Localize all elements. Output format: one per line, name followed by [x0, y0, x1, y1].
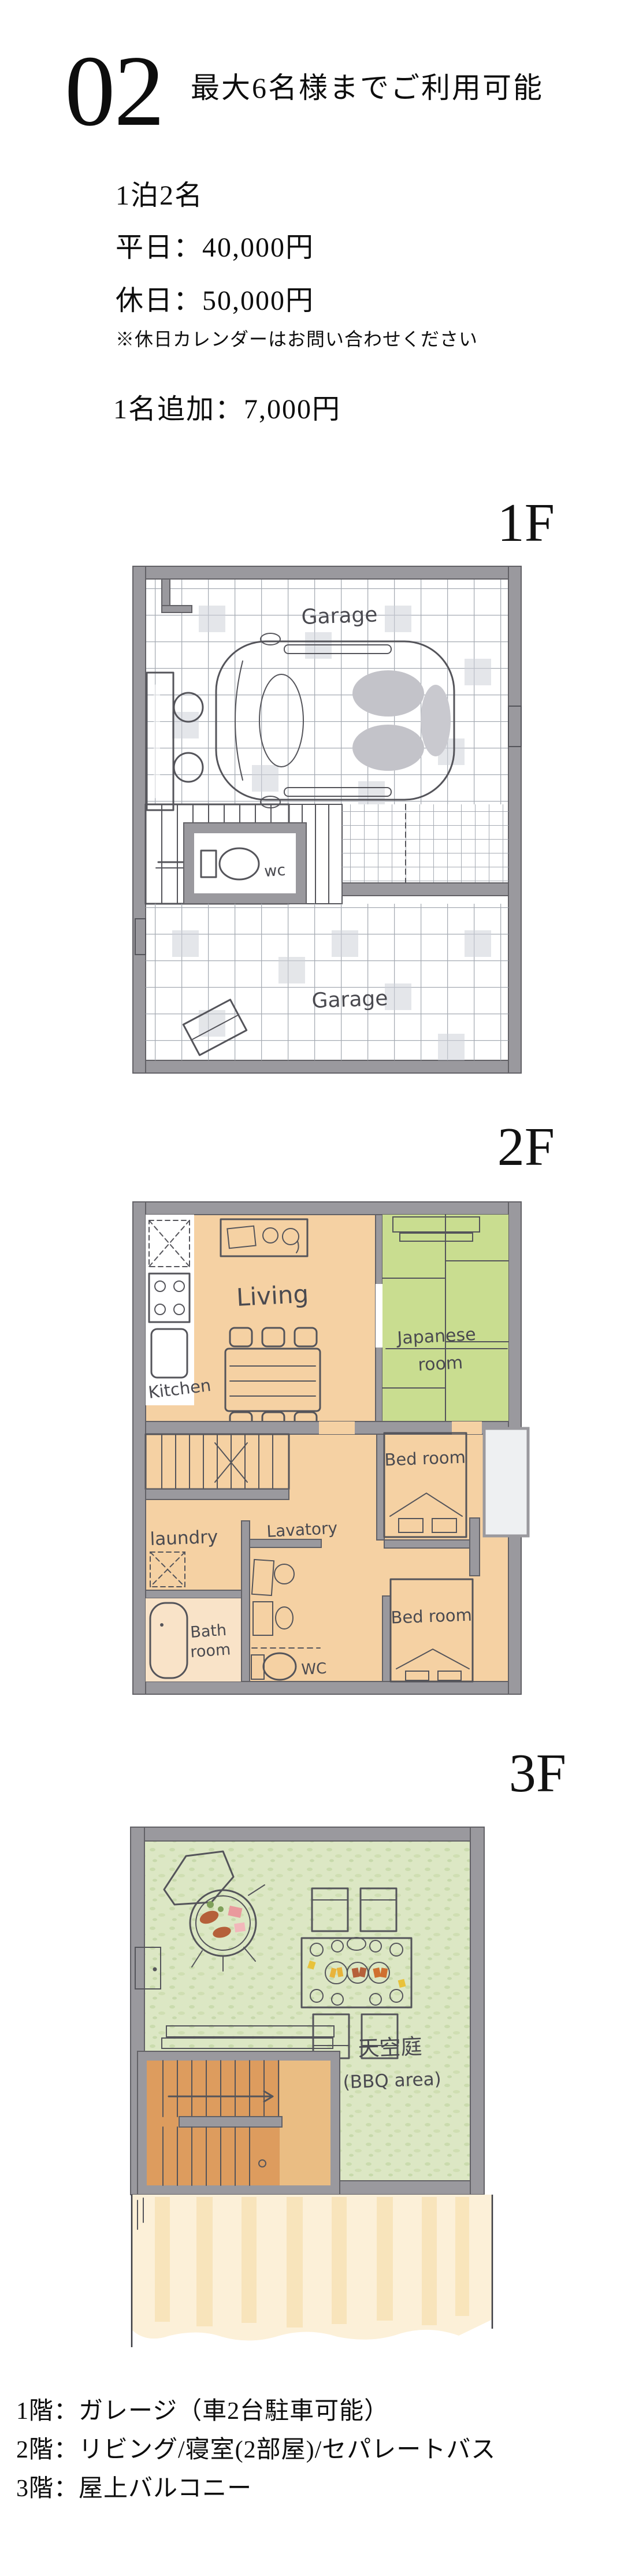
legend-floor1: 1階：ガレージ（車2台駐車可能） [16, 2392, 496, 2431]
price-extra-person: 1名追加：7,000円 [113, 386, 341, 426]
price-holiday: 休日：50,000円 [116, 277, 314, 318]
bath-room-label-2: room [190, 1640, 231, 1661]
capacity-note: 最大6名様までご利用可能 [191, 65, 544, 106]
stairs-3f [138, 2051, 340, 2195]
floorplan-2f: Kitchen Living Japanese room [128, 1197, 533, 1699]
legend-floor2: 2階：リビング/寝室(2部屋)/セパレートバス [16, 2431, 496, 2470]
floor-label-3f: 3F [358, 1746, 566, 1801]
bath-room: Bath room [146, 1598, 242, 1682]
wc-room-1f: wc [184, 823, 306, 904]
bedroom-upper-label: Bed room [384, 1447, 466, 1470]
plan-number: 02 [65, 40, 164, 142]
lower-roof [132, 2195, 492, 2347]
floor-label-1f: 1F [347, 496, 555, 550]
living-label: Living [236, 1280, 309, 1312]
price-holiday-note: ※休日カレンダーはお問い合わせください [116, 325, 478, 351]
wc-label-1f: wc [263, 861, 286, 881]
sky-garden-label: 天空庭 [358, 2034, 422, 2061]
wc-label-2f: WC [301, 1660, 327, 1679]
price-weekday: 平日：40,000円 [116, 224, 314, 265]
japanese-room-label-2: room [418, 1353, 463, 1375]
bedroom-lower-label: Bed room [391, 1605, 472, 1628]
page: { "header": { "index_number": "02", "cap… [0, 0, 624, 2576]
balcony [484, 1428, 528, 1536]
price-base-label: 1泊2名 [116, 172, 203, 213]
garage-lower-label: Garage [311, 986, 388, 1013]
laundry-label: laundry [150, 1527, 218, 1550]
floor-label-2f: 2F [347, 1120, 555, 1174]
japanese-room: Japanese room [376, 1215, 508, 1430]
bbq-area-label: (BBQ area) [343, 2069, 441, 2093]
garage-upper-label: Garage [301, 603, 378, 629]
lavatory-label: Lavatory [266, 1519, 338, 1541]
garage-floor-tiles-lower [146, 904, 508, 1060]
floorplan-3f: 天空庭 (BBQ area) [128, 1825, 533, 2351]
legend-floor3: 3階：屋上バルコニー [16, 2470, 496, 2508]
bath-room-label-1: Bath [190, 1621, 227, 1642]
japanese-room-label-1: Japanese [396, 1324, 477, 1349]
floor-legend: 1階：ガレージ（車2台駐車可能） 2階：リビング/寝室(2部屋)/セパレートバス… [16, 2392, 496, 2509]
floorplan-1f: Garage wc [128, 562, 526, 1078]
